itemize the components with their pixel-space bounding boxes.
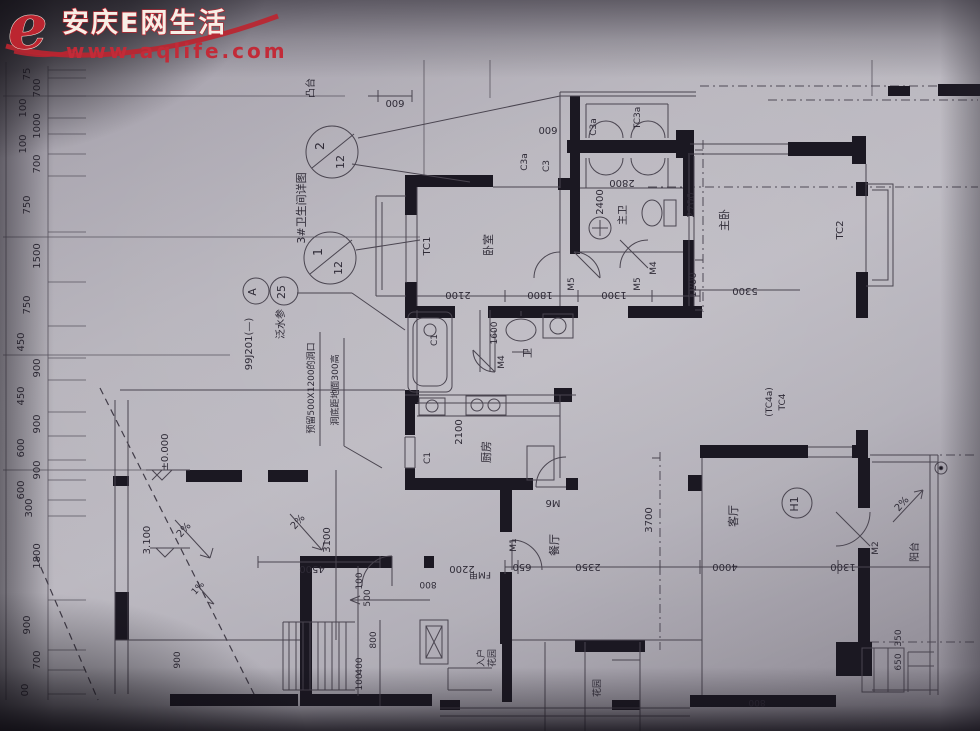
mark-m2: M2 xyxy=(871,541,881,555)
mark-tc4: TC4 xyxy=(778,393,788,411)
mark-c3a: C3a xyxy=(589,118,599,136)
construction-lines xyxy=(115,90,947,731)
room-dining: 餐厅 xyxy=(547,534,561,556)
mark-c3: C3 xyxy=(542,160,552,172)
mark-c3a: C3a xyxy=(520,153,530,171)
dim-label: 900 xyxy=(32,414,43,433)
dim-label: 600 xyxy=(16,480,27,499)
dim-1600: 1600 xyxy=(490,321,500,344)
bubble-1-sheet: 12 xyxy=(332,261,345,275)
dim-label: 750 xyxy=(22,295,33,314)
dim-350: 350 xyxy=(894,629,904,646)
dim-800: 800 xyxy=(748,697,765,707)
note-bath-detail: 3#卫生间详图 xyxy=(294,172,308,243)
bubble-H1: H1 xyxy=(788,496,801,511)
mark-m6: M6 xyxy=(546,497,561,508)
mark-m4: M4 xyxy=(497,355,507,369)
plan-labels: 75 700 100 1000 100 700 750 1500 750 450… xyxy=(16,68,921,707)
dim-2400: 2400 xyxy=(595,189,606,214)
slope-1pct: 1% xyxy=(190,580,207,598)
dim-label: 700 xyxy=(32,78,43,97)
dim-2100: 2100 xyxy=(445,289,470,300)
watermark-e-logo: e xyxy=(8,0,47,63)
dim-400: 400 xyxy=(355,657,365,674)
dim-1800: 1800 xyxy=(527,289,552,300)
room-living: 客厅 xyxy=(726,505,740,527)
note-terrace: 凸台 xyxy=(304,78,317,98)
dim-label: 450 xyxy=(16,386,27,405)
mark-m4: M4 xyxy=(649,261,659,275)
dim-2700: 2700 xyxy=(686,192,697,217)
dim-600: 600 xyxy=(538,124,557,135)
dim-900: 900 xyxy=(173,651,183,668)
dim-4500: 4500 xyxy=(299,563,324,574)
watermark-brand: 安庆E网生活 xyxy=(62,7,227,39)
note-hole-2: 洞底距地面300高 xyxy=(329,354,341,425)
note-hole-1: 预留500X1200的洞口 xyxy=(305,342,317,433)
centerlines xyxy=(648,86,978,650)
dim-label: 00 xyxy=(20,684,31,697)
bubble-1: 1 xyxy=(310,248,325,256)
mark-m1: M1 xyxy=(509,538,519,552)
dim-3100: 3100 xyxy=(322,527,333,552)
dim-4000: 4000 xyxy=(712,561,737,572)
floorplan-photo: 75 700 100 1000 100 700 750 1500 750 450… xyxy=(0,0,980,731)
mark-tc4a: (TC4a) xyxy=(765,387,775,417)
dim-label: 900 xyxy=(32,460,43,479)
dim-650: 650 xyxy=(512,561,531,572)
room-balcony: 阳台 xyxy=(908,542,921,562)
mark-m5: M5 xyxy=(567,277,577,291)
dim-label: 750 xyxy=(22,195,33,214)
dim-label: 100 xyxy=(18,98,29,117)
dim-100: 100 xyxy=(355,673,365,690)
dim-5300: 5300 xyxy=(732,285,757,296)
floorplan-drawing: 75 700 100 1000 100 700 750 1500 750 450… xyxy=(0,0,980,731)
dim-600: 600 xyxy=(385,97,404,108)
dim-label: 300 xyxy=(24,498,35,517)
mark-tc3a: TC3a xyxy=(633,107,643,131)
dim-label: 100 xyxy=(18,134,29,153)
grid-lines xyxy=(3,60,872,700)
walls xyxy=(113,84,980,710)
room-entry-garden: 入户 xyxy=(475,649,487,667)
dim-650: 650 xyxy=(894,653,904,670)
note-flashing: 泛水参 xyxy=(274,309,287,339)
bubble-2: 2 xyxy=(312,142,327,150)
dim-label: 900 xyxy=(22,615,33,634)
mark-m5: M5 xyxy=(633,277,643,291)
note-atlas: 99J201(—) xyxy=(244,318,255,371)
dim-500: 500 xyxy=(363,589,373,606)
dim-1300: 1300 xyxy=(601,289,626,300)
dim-label: 1500 xyxy=(32,243,43,268)
bubble-A: A xyxy=(246,288,259,296)
dim-2350: 2350 xyxy=(575,561,600,572)
bubble-2-sheet: 12 xyxy=(334,155,347,169)
dim-label: 1000 xyxy=(32,113,43,138)
bubble-25: 25 xyxy=(275,285,288,299)
dim-2200: 2200 xyxy=(449,563,474,574)
mark-c1: C1 xyxy=(430,334,440,346)
dim-800: 800 xyxy=(369,631,379,648)
dim-2100: 2100 xyxy=(454,419,465,444)
dim-label: 700 xyxy=(32,154,43,173)
dim-3700: 3700 xyxy=(644,507,655,532)
slope-2pct: 2% xyxy=(893,495,912,514)
room-master-bath: 主卫 xyxy=(617,205,629,225)
mark-tc1: TC1 xyxy=(422,237,433,257)
room-kitchen: 厨房 xyxy=(480,441,493,463)
watermark-url: www.aqlife.com xyxy=(66,39,286,63)
mark-c1: C1 xyxy=(423,452,433,464)
level-3100: 3.100 xyxy=(142,526,153,555)
room-entry-garden: 花园 xyxy=(486,649,498,667)
mark-tc2: TC2 xyxy=(835,221,846,241)
dim-1200: 1200 xyxy=(688,272,699,297)
dim-100: 100 xyxy=(355,572,365,589)
watermark: e 安庆E网生活 www.aqlife.com xyxy=(0,0,286,64)
level-zero: ±0.000 xyxy=(160,433,171,470)
dim-1300: 1300 xyxy=(830,561,855,572)
room-master-bed: 主卧 xyxy=(718,209,731,231)
dim-label: 1800 xyxy=(32,543,43,568)
room-bedroom: 卧室 xyxy=(481,234,495,256)
room-bath: 卫 xyxy=(523,348,534,358)
dim-label: 450 xyxy=(16,332,27,351)
room-entry-garden: 花园 xyxy=(591,679,603,697)
dim-label: 700 xyxy=(32,650,43,669)
dim-2800: 2800 xyxy=(609,177,634,188)
dim-800: 800 xyxy=(419,579,436,589)
dim-label: 600 xyxy=(16,438,27,457)
dim-label: 900 xyxy=(32,358,43,377)
